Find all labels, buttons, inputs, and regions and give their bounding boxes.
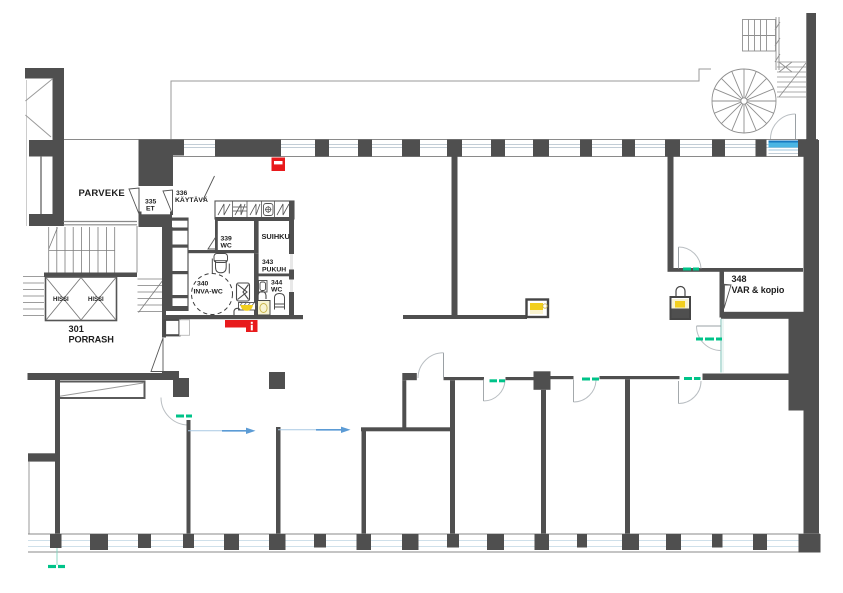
svg-text:KÄYTÄVÄ: KÄYTÄVÄ — [175, 196, 208, 204]
svg-text:344: 344 — [271, 280, 283, 287]
svg-text:343: 343 — [262, 259, 274, 266]
svg-text:348: 348 — [732, 274, 747, 284]
svg-text:HISSI: HISSI — [53, 297, 69, 303]
svg-text:SUIHKU: SUIHKU — [262, 232, 290, 241]
svg-text:VAR & kopio: VAR & kopio — [732, 285, 785, 295]
svg-text:INVA-WC: INVA-WC — [194, 289, 223, 296]
svg-text:335: 335 — [145, 199, 157, 206]
svg-text:WC: WC — [271, 287, 282, 294]
svg-text:PORRASH: PORRASH — [69, 335, 115, 345]
svg-text:336: 336 — [176, 190, 188, 197]
svg-text:HISSI: HISSI — [88, 297, 104, 303]
svg-text:PARVEKE: PARVEKE — [79, 188, 125, 199]
svg-text:PUKUH: PUKUH — [262, 267, 286, 274]
svg-text:WC: WC — [221, 243, 232, 250]
svg-text:340: 340 — [197, 280, 209, 287]
svg-text:301: 301 — [69, 324, 84, 334]
svg-text:339: 339 — [221, 236, 233, 243]
svg-text:ET: ET — [146, 206, 156, 213]
